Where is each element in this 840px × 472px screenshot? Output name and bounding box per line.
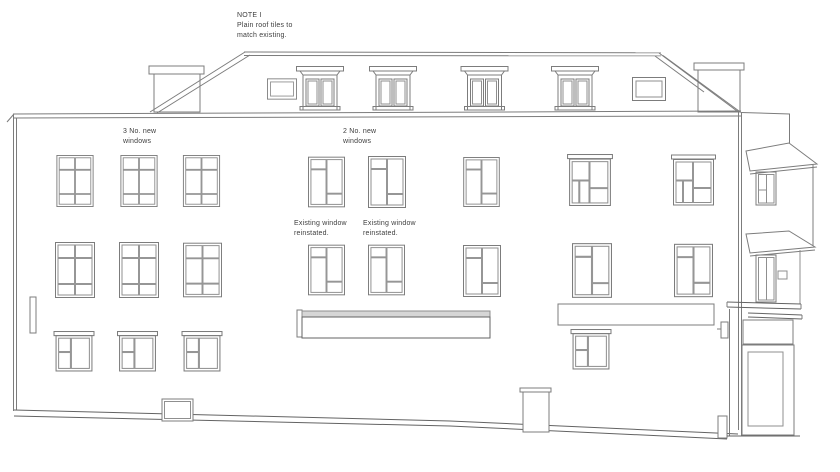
second-floor-windows	[56, 243, 713, 298]
wall-pipe	[30, 297, 36, 333]
label-reinstated-left: Existing window reinstated.	[294, 219, 347, 239]
right-base-post	[718, 416, 727, 438]
wall-bracket	[717, 322, 728, 338]
first-floor-windows	[57, 155, 716, 208]
right-parapet	[694, 63, 744, 112]
shopfront-pilaster	[730, 309, 742, 436]
shopfront-sign-box	[743, 320, 793, 344]
upper-canopy	[746, 143, 817, 171]
note-line-2: Plain roof tiles to	[237, 21, 293, 31]
meter-box	[162, 399, 193, 421]
dormer-windows	[297, 67, 599, 111]
elevation-drawing	[0, 0, 840, 472]
label-left-new-windows: 3 No. new windows	[123, 127, 156, 147]
roof-ridge-and-hips	[150, 52, 741, 113]
lower-canopy	[746, 231, 815, 253]
label-reinstated-right: Existing window reinstated.	[363, 219, 416, 239]
shop-fascia-right	[558, 304, 714, 325]
centre-base-box	[520, 388, 551, 432]
wing-door	[756, 255, 787, 302]
eaves-line	[7, 111, 741, 122]
note-roof-tiles: NOTE I Plain roof tiles to match existin…	[237, 11, 293, 41]
shopfront-sign-rails	[748, 313, 802, 319]
elevation-sheet: NOTE I Plain roof tiles to match existin…	[0, 0, 840, 472]
right-wing	[717, 113, 817, 437]
shopfront-stallriser	[742, 345, 794, 435]
wing-upper-window	[756, 172, 776, 205]
ground-lines	[14, 410, 738, 439]
shop-fascia-left	[297, 310, 490, 338]
label-centre-new-windows: 2 No. new windows	[343, 127, 376, 147]
facade-outline	[14, 112, 742, 431]
note-line-3: match existing.	[237, 31, 293, 41]
note-line-1: NOTE I	[237, 11, 293, 21]
